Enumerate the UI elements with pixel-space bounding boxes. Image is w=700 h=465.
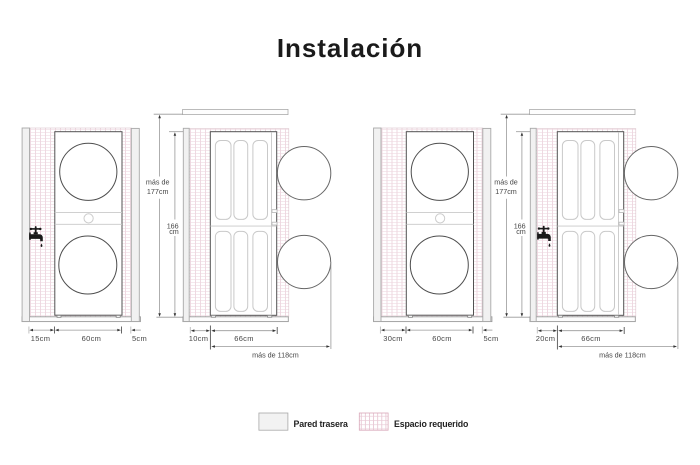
- svg-text:Espacio requerido: Espacio requerido: [394, 419, 469, 429]
- svg-text:60cm: 60cm: [82, 334, 102, 343]
- svg-text:más de 118cm: más de 118cm: [599, 351, 646, 360]
- svg-text:más de 118cm: más de 118cm: [252, 351, 299, 360]
- svg-text:más de: más de: [146, 177, 170, 186]
- svg-text:cm: cm: [516, 227, 526, 236]
- svg-text:5cm: 5cm: [132, 334, 147, 343]
- svg-text:66cm: 66cm: [581, 334, 601, 343]
- svg-text:15cm: 15cm: [31, 334, 51, 343]
- svg-text:5cm: 5cm: [483, 334, 498, 343]
- svg-text:Pared trasera: Pared trasera: [294, 419, 349, 429]
- svg-text:10cm: 10cm: [189, 334, 209, 343]
- svg-text:20cm: 20cm: [536, 334, 556, 343]
- svg-text:más de: más de: [494, 177, 518, 186]
- svg-text:Instalación: Instalación: [277, 33, 423, 63]
- svg-text:cm: cm: [169, 227, 179, 236]
- svg-text:66cm: 66cm: [234, 334, 254, 343]
- svg-text:30cm: 30cm: [383, 334, 403, 343]
- svg-text:177cm: 177cm: [147, 187, 169, 196]
- svg-text:60cm: 60cm: [432, 334, 452, 343]
- svg-text:177cm: 177cm: [495, 187, 517, 196]
